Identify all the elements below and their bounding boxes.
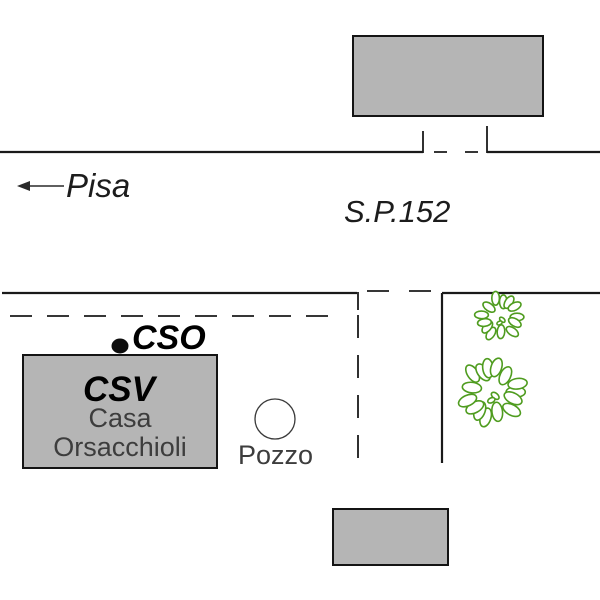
well-circle-icon	[255, 399, 295, 439]
building-south	[333, 509, 448, 565]
site-map	[0, 0, 600, 600]
bush-leaf	[492, 291, 500, 305]
cso-label: CSO	[132, 319, 206, 358]
bush-leaf	[497, 325, 506, 339]
bush-leaf	[462, 381, 482, 394]
bush-leaf	[491, 402, 504, 422]
cso-marker-dot-icon	[112, 339, 129, 354]
bush-icon	[475, 291, 524, 341]
well-label: Pozzo	[238, 440, 313, 471]
road-name-label: S.P.152	[344, 194, 450, 230]
bush-leaf	[475, 311, 489, 319]
building-north	[353, 36, 543, 116]
building-name: Casa Orsacchioli	[23, 404, 217, 462]
pisa-arrow-icon	[17, 181, 30, 191]
pisa-direction-label: Pisa	[66, 167, 130, 205]
building-name-line1: Casa	[23, 404, 217, 433]
bush-icon	[457, 357, 528, 429]
building-name-line2: Orsacchioli	[23, 433, 217, 462]
